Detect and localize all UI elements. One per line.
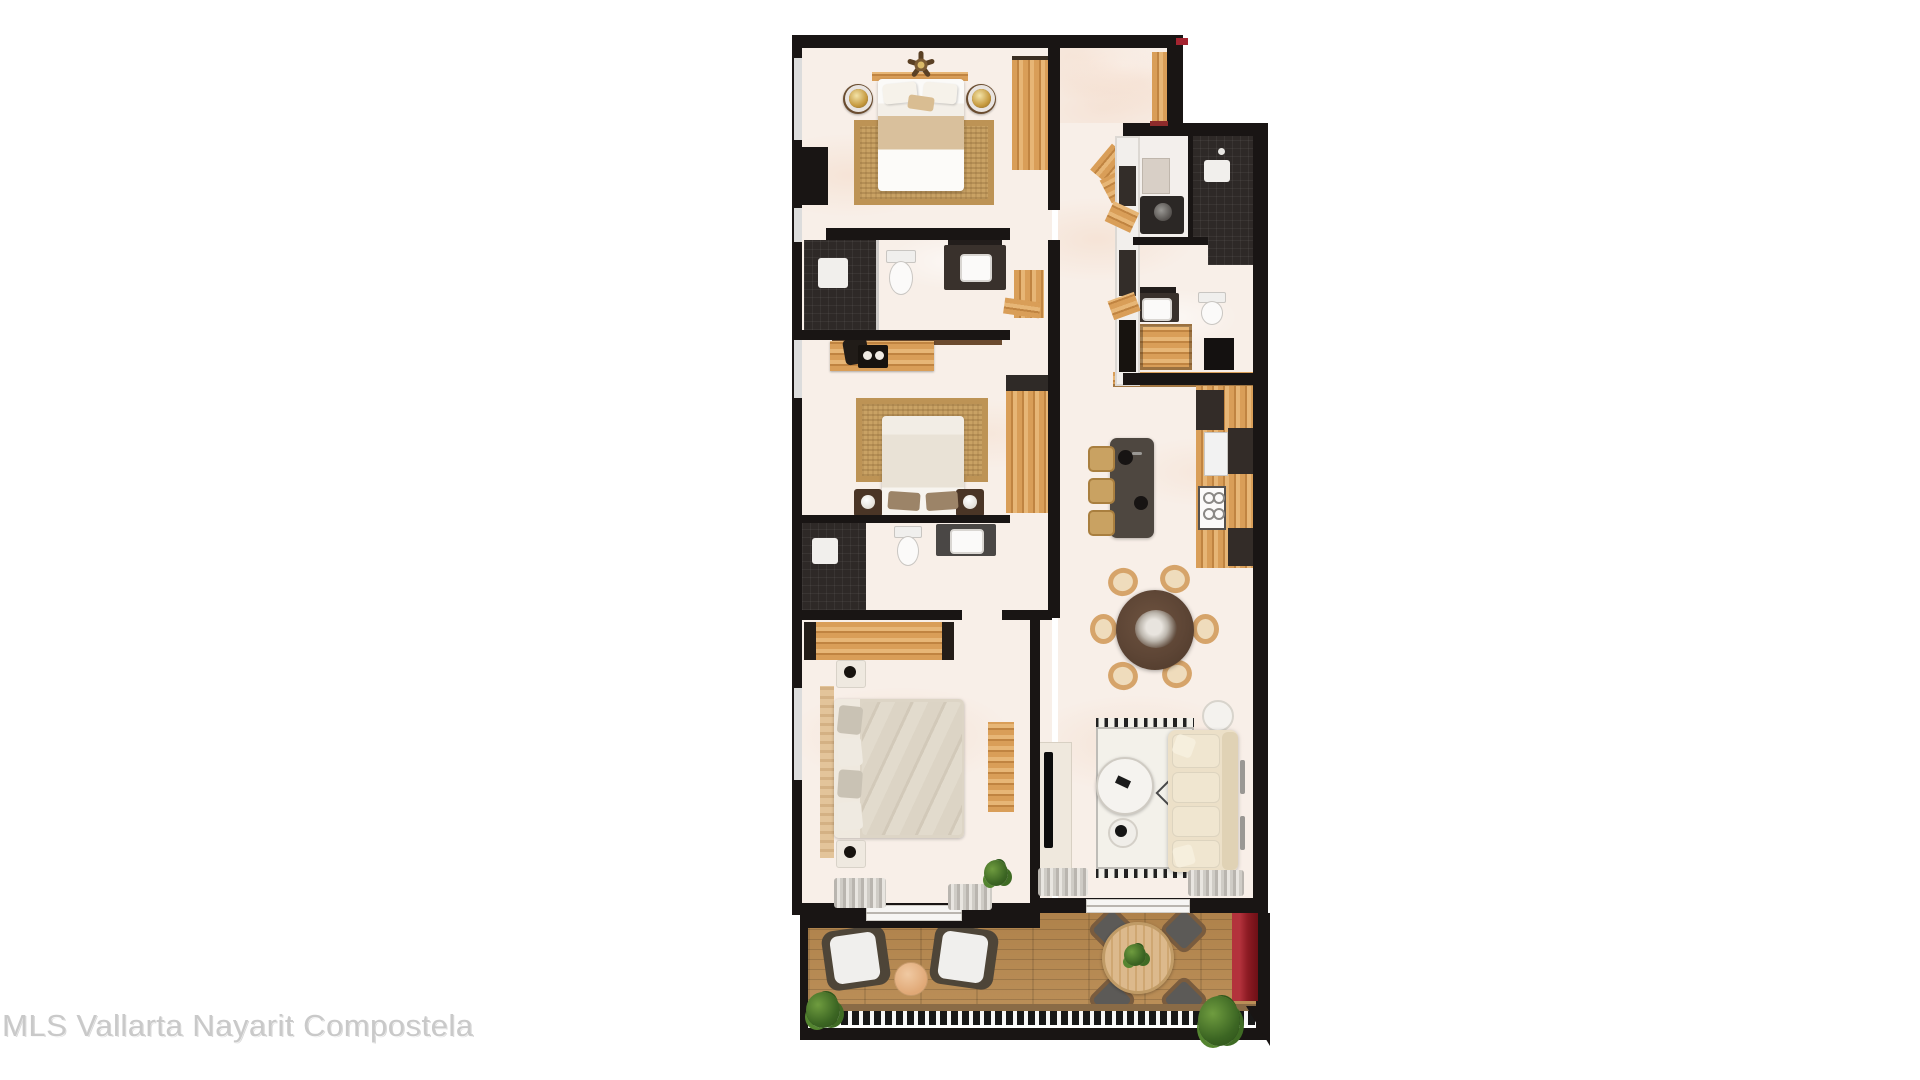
wall-foyer-east (1167, 40, 1183, 135)
master-closet-cap (942, 622, 954, 660)
terrace-lounge-cushion (829, 931, 881, 985)
master-headboard (820, 686, 834, 858)
wall-wing-north (1123, 123, 1266, 136)
shower-room-tray (1204, 160, 1230, 182)
console-dark-cell (1119, 250, 1136, 296)
kitchen-counter-dark-section (1228, 428, 1254, 474)
wall-east-main (1253, 123, 1268, 918)
kitchen-stool (1088, 478, 1115, 504)
island-sink-icon (1118, 450, 1133, 465)
console-dark-cell (1119, 166, 1136, 206)
master-bench (988, 722, 1014, 812)
wall-wing-mid (1133, 237, 1208, 245)
tv-icon (1044, 752, 1053, 848)
wall-bedroom1-bath1 (826, 228, 1010, 240)
bedroom1-pendant-lamp-icon (972, 89, 991, 108)
bathroom1-toilet-bowl (889, 261, 913, 295)
master-lamp-icon (844, 666, 856, 678)
master-curtain (948, 884, 992, 910)
island-basin-icon (1134, 496, 1148, 510)
master-pillow (837, 801, 864, 831)
dining-centerpiece (1135, 610, 1177, 648)
terrace-corner-wedge (1246, 1006, 1270, 1046)
floor-plan-render: MLS Vallarta Nayarit Compostela (0, 0, 1920, 1080)
shower-head-icon (1218, 148, 1225, 155)
bedroom1-wardrobe (1012, 56, 1050, 170)
fridge-icon (1204, 432, 1228, 476)
bedroom2-pillow (925, 491, 958, 511)
guest-toilet-bowl (1201, 301, 1223, 325)
bathroom2-toilet-bowl (897, 536, 919, 566)
wall-terrace-south (800, 1028, 1262, 1040)
master-plant-icon (984, 860, 1008, 886)
ceiling-fan-icon (888, 50, 954, 80)
console-dark-cell (1119, 320, 1136, 372)
bedroom2-tray-cup (863, 351, 872, 360)
bathroom1-shower-glass (876, 240, 879, 330)
bedroom2-pillow (887, 491, 920, 511)
living-sliding-door-rail (1086, 905, 1190, 907)
living-curtain (1038, 868, 1088, 896)
master-closet-cap (804, 622, 816, 660)
terrace-plant-icon (1198, 996, 1240, 1046)
sofa-arm-rail (1240, 760, 1245, 794)
living-curtain (1188, 870, 1244, 896)
wall-bath2-master-b (1002, 610, 1052, 620)
wall-wing-south (1123, 373, 1266, 385)
terrace-plant-icon (806, 992, 840, 1028)
terrace-rail-top (808, 1004, 1256, 1011)
window-bedroom1 (794, 58, 802, 140)
guest-dark-mat (1204, 338, 1234, 370)
bathroom2-shower (802, 522, 866, 610)
master-duvet (862, 702, 962, 835)
terrace-red-curtain (1232, 913, 1258, 1001)
dining-chair (1192, 614, 1219, 644)
guest-sink (1142, 298, 1172, 321)
cooktop-burner (1213, 508, 1225, 520)
entry-door-accent (1176, 38, 1188, 45)
bathroom1-sink (960, 254, 992, 282)
pier-bedroom1 (792, 147, 828, 205)
kitchen-stool (1088, 446, 1115, 472)
wall-terrace-west (800, 928, 808, 1038)
wall-bath2-master-a (802, 610, 962, 620)
guest-cabinet (1140, 324, 1192, 370)
kitchen-counter-dark-section (1196, 390, 1224, 430)
island-faucet-icon (1132, 452, 1142, 455)
kitchen-stool (1088, 510, 1115, 536)
bedroom2-lamp-icon (963, 495, 977, 509)
bathroom2-sink (950, 529, 984, 554)
master-sliding-door-rail (866, 912, 962, 914)
laundry-shelf (1142, 158, 1170, 194)
bedroom2-tray-cup (875, 351, 884, 360)
side-tray-decor (1115, 825, 1127, 837)
master-curtain (834, 878, 886, 908)
sofa-arm-rail (1240, 816, 1245, 850)
window-bedroom2 (794, 340, 802, 398)
master-lamp-icon (844, 846, 856, 858)
living-side-table (1202, 700, 1234, 732)
master-pillow (837, 769, 863, 799)
wall-column-east-upper (1048, 48, 1060, 210)
master-pillow (837, 705, 864, 735)
sofa-cushion (1172, 806, 1220, 837)
washer-door-icon (1154, 203, 1172, 221)
bedroom2-lamp-icon (861, 495, 875, 509)
master-closet (804, 622, 954, 660)
cooktop-burner (1213, 492, 1225, 504)
wall-top (792, 35, 1183, 48)
terrace-lounge-cushion (937, 930, 989, 984)
sofa-cushion (1172, 772, 1220, 803)
wall-bath1-bedroom2 (802, 330, 1010, 340)
dining-chair (1090, 614, 1117, 644)
bedroom1-pendant-lamp-icon (849, 89, 868, 108)
master-pillow (837, 737, 863, 767)
bedroom2-wardrobe-shelf (1006, 375, 1052, 391)
wall-bedroom2-bath2 (802, 515, 1010, 523)
bedroom2-wardrobe (1006, 391, 1052, 513)
window-master (794, 688, 802, 780)
kitchen-counter-dark-section (1228, 528, 1254, 566)
sofa-backrest (1222, 732, 1238, 870)
bathroom2-shower-tray (812, 538, 838, 564)
terrace-table-plant-icon (1124, 944, 1146, 966)
floor-shower-walkthrough (1208, 237, 1253, 265)
window-bedroom1-b (794, 208, 802, 242)
terrace-railing (808, 1011, 1256, 1025)
terrace-side-table (894, 962, 928, 996)
entry-door-accent (1150, 121, 1168, 126)
wall-column-east-lower (1048, 240, 1060, 610)
bathroom1-shower-tray (818, 258, 848, 288)
watermark-text: MLS Vallarta Nayarit Compostela (2, 1008, 474, 1044)
foyer-wood-trim (1152, 52, 1167, 122)
wall-laundry-shower-divider (1188, 136, 1193, 237)
